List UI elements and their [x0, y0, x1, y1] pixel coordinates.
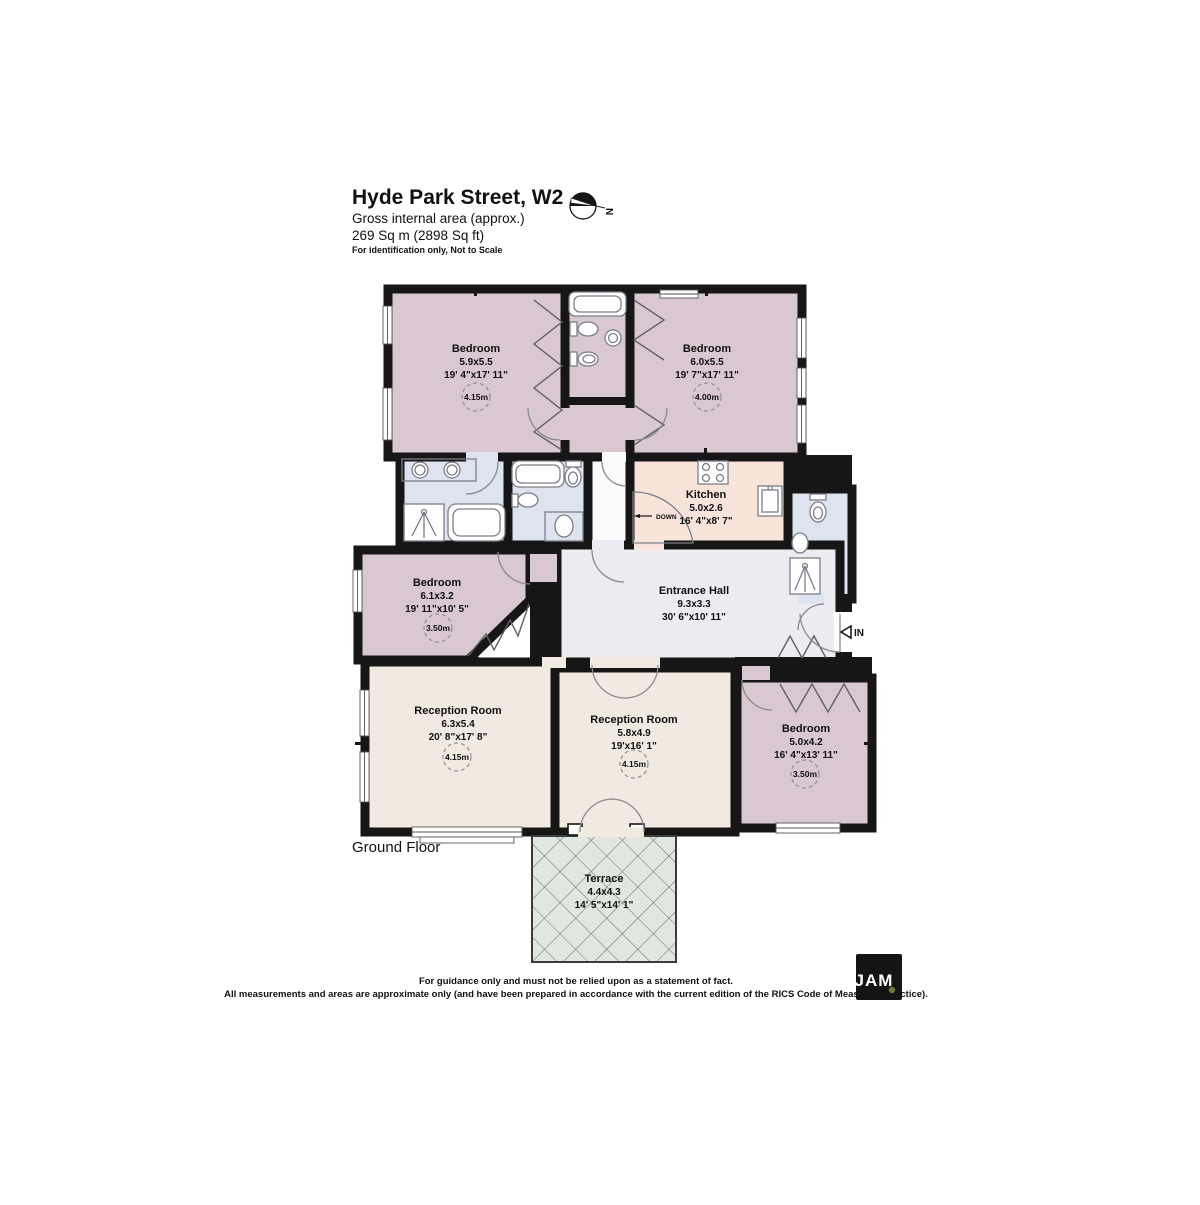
svg-text:Bedroom: Bedroom: [782, 723, 831, 735]
footer-line-1: For guidance only and must not be relied…: [419, 976, 733, 987]
svg-text:4.15m: 4.15m: [622, 759, 647, 769]
north-compass-icon: N: [570, 193, 614, 219]
sink-icon: [758, 486, 782, 516]
in-label: IN: [854, 628, 864, 639]
footer-line-2: All measurements and areas are approxima…: [224, 989, 928, 1000]
toilet-icon: [810, 494, 826, 522]
svg-text:Entrance Hall: Entrance Hall: [659, 585, 729, 597]
svg-text:6.0x5.5: 6.0x5.5: [690, 357, 724, 368]
toilet-icon: [570, 352, 598, 366]
svg-text:Bedroom: Bedroom: [452, 343, 501, 355]
bidet-icon: [512, 493, 538, 507]
jam-logo: JAM: [855, 954, 902, 1000]
window-icon: [776, 823, 840, 833]
window-icon: [383, 388, 392, 440]
svg-text:3.50m: 3.50m: [793, 769, 818, 779]
jam-logo-dot: [889, 987, 895, 993]
terrace-deck: [532, 836, 676, 962]
window-icon: [360, 752, 369, 802]
window-icon: [660, 290, 698, 298]
svg-text:19' 7"x17' 11": 19' 7"x17' 11": [675, 370, 739, 381]
svg-text:4.15m: 4.15m: [445, 752, 470, 762]
svg-text:5.0x2.6: 5.0x2.6: [689, 503, 723, 514]
svg-text:14' 5"x14' 1": 14' 5"x14' 1": [575, 900, 634, 911]
window-icon: [797, 368, 806, 398]
bathtub-icon: [569, 292, 626, 316]
hob-icon: [698, 461, 728, 484]
page-title: Hyde Park Street, W2: [352, 186, 563, 209]
svg-text:Reception Room: Reception Room: [414, 705, 502, 717]
room-reception-left: [365, 662, 555, 832]
window-icon: [353, 570, 362, 612]
svg-text:19' 11"x10' 5": 19' 11"x10' 5": [405, 604, 469, 615]
svg-text:4.00m: 4.00m: [695, 392, 720, 402]
toilet-icon: [565, 461, 581, 487]
window-icon: [360, 690, 369, 736]
svg-text:5.0x4.2: 5.0x4.2: [789, 737, 823, 748]
svg-text:16' 4"x13' 11": 16' 4"x13' 11": [774, 750, 838, 761]
shower-icon: [790, 558, 820, 594]
jam-logo-text: JAM: [855, 971, 894, 990]
svg-text:Bedroom: Bedroom: [413, 577, 462, 589]
svg-text:6.3x5.4: 6.3x5.4: [441, 719, 475, 730]
svg-text:Kitchen: Kitchen: [686, 489, 727, 501]
bidet-icon: [570, 322, 598, 336]
down-label: DOWN: [656, 514, 677, 521]
svg-text:4.4x4.3: 4.4x4.3: [587, 887, 621, 898]
svg-text:3.50m: 3.50m: [426, 623, 451, 633]
svg-text:4.15m: 4.15m: [464, 392, 489, 402]
header: Hyde Park Street, W2 Gross internal area…: [352, 186, 614, 255]
bathtub-icon: [448, 504, 505, 541]
svg-text:16' 4"x8' 7": 16' 4"x8' 7": [679, 516, 732, 527]
svg-text:5.9x5.5: 5.9x5.5: [459, 357, 493, 368]
svg-text:Reception Room: Reception Room: [590, 714, 678, 726]
svg-text:5.8x4.9: 5.8x4.9: [617, 728, 651, 739]
shower-icon: [404, 504, 444, 541]
floorplan-page: Hyde Park Street, W2 Gross internal area…: [0, 0, 1200, 1200]
svg-text:Bedroom: Bedroom: [683, 343, 732, 355]
ground-floor-label: Ground Floor: [352, 839, 440, 856]
area-subtitle: Gross internal area (approx.): [352, 211, 525, 226]
basin-icon: [792, 533, 808, 553]
area-value: 269 Sq m (2898 Sq ft): [352, 228, 484, 243]
window-icon: [797, 318, 806, 358]
bathtub-icon: [512, 461, 564, 487]
basin-icon: [605, 330, 621, 346]
svg-text:19' 4"x17' 11": 19' 4"x17' 11": [444, 370, 508, 381]
window-icon: [797, 405, 806, 443]
svg-text:Terrace: Terrace: [585, 873, 624, 885]
svg-text:30' 6"x10' 11": 30' 6"x10' 11": [662, 612, 726, 623]
svg-text:20' 8"x17' 8": 20' 8"x17' 8": [429, 732, 488, 743]
compass-letter: N: [603, 208, 614, 215]
corridor: [588, 457, 630, 545]
floorplan-svg: Hyde Park Street, W2 Gross internal area…: [0, 0, 1200, 1200]
window-icon: [383, 306, 392, 344]
footer: For guidance only and must not be relied…: [224, 976, 928, 1000]
svg-text:9.3x3.3: 9.3x3.3: [677, 599, 711, 610]
svg-text:6.1x3.2: 6.1x3.2: [420, 591, 454, 602]
scale-note: For identification only, Not to Scale: [352, 245, 502, 255]
